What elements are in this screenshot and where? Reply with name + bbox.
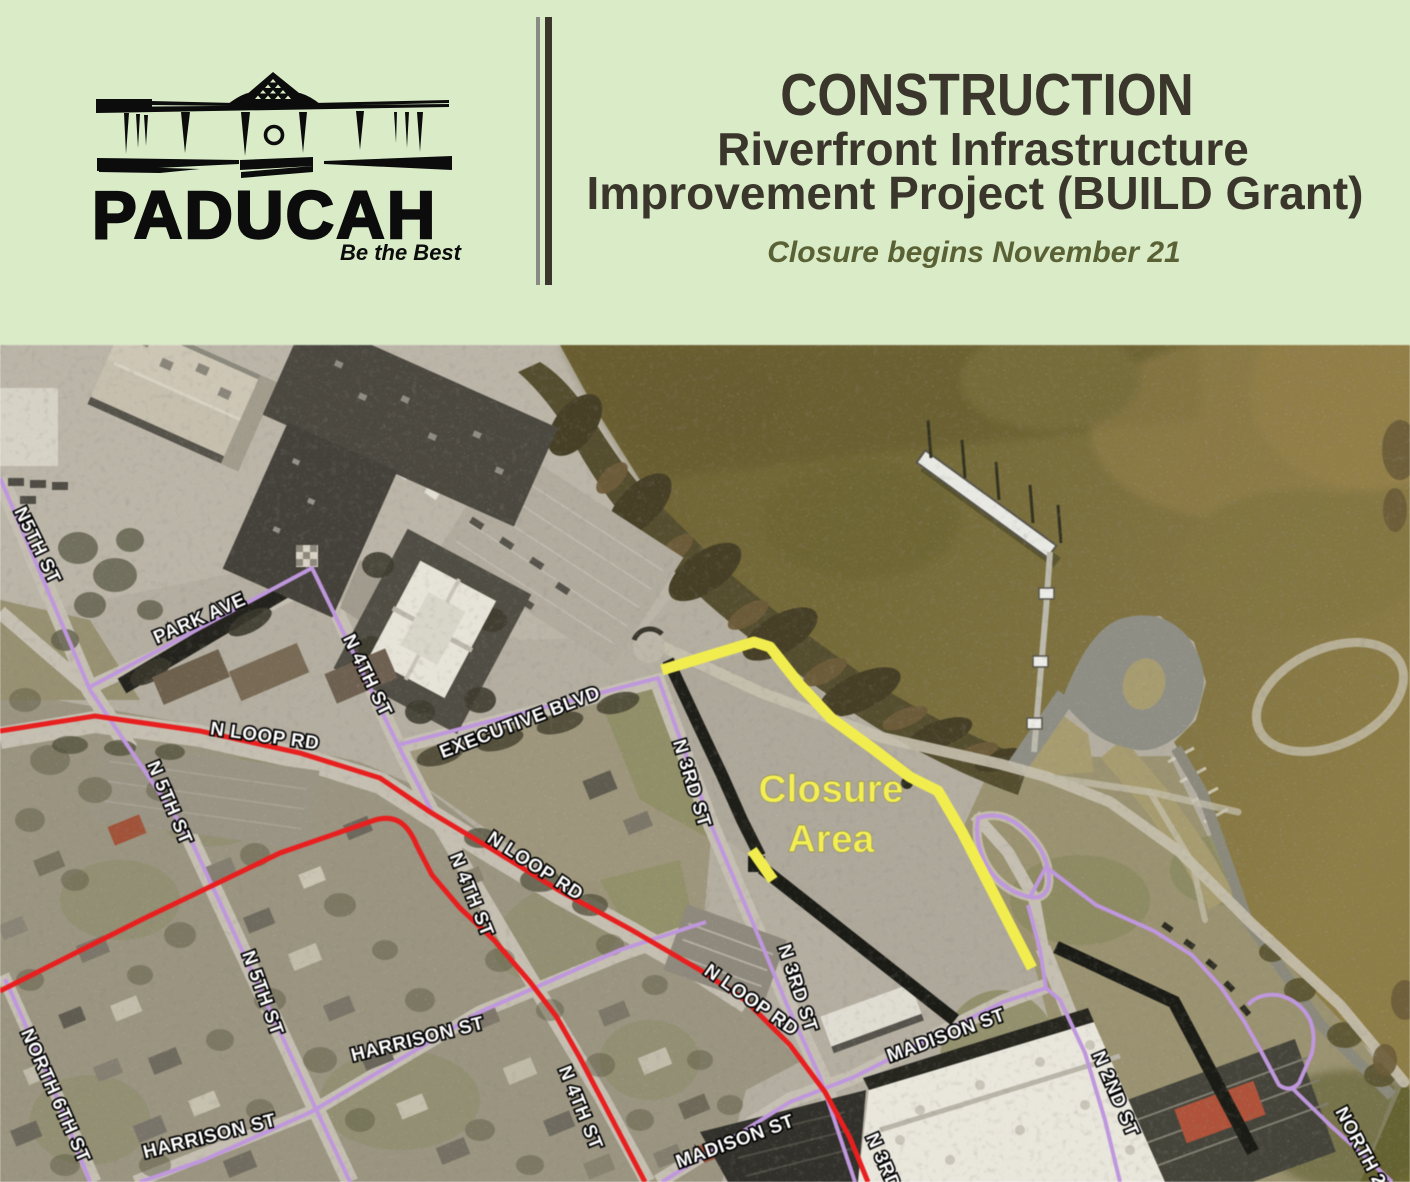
svg-text:Area: Area [788, 818, 875, 861]
svg-text:Closure: Closure [758, 768, 903, 811]
svg-text:Be the Best: Be the Best [340, 240, 463, 265]
